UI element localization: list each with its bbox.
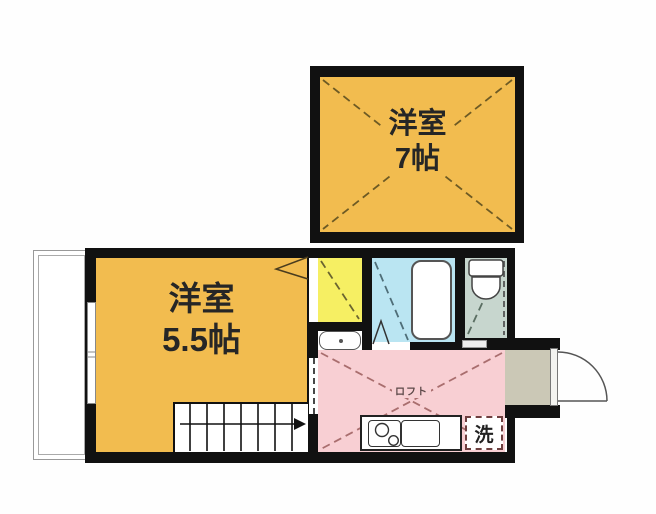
upper-room-label: 洋室 7帖 [320, 107, 515, 177]
washroom-wall [362, 258, 372, 350]
balcony-inner-line [38, 255, 85, 455]
kitchen-sink [401, 420, 440, 447]
bathtub [411, 260, 452, 340]
loft-edge-opening [309, 358, 318, 414]
washbasin [319, 331, 361, 350]
upper-room-name: 洋室 [383, 107, 451, 142]
window [87, 302, 96, 404]
entrance-door-swing-icon [558, 352, 607, 401]
entrance-door-leaf [550, 348, 558, 406]
staircase [173, 402, 308, 452]
upper-room-size: 7帖 [390, 142, 445, 177]
washer-space: 洗 [465, 416, 503, 450]
loft-label: ロフト [318, 383, 505, 398]
lower-room-label: 洋室 5.5帖 [96, 278, 307, 360]
toilet-wall-left [455, 258, 465, 350]
floor-plan: 洗 [0, 0, 656, 514]
closet [318, 258, 362, 322]
closet-wall [318, 322, 362, 331]
lower-room-name: 洋室 [169, 278, 235, 319]
toilet-threshold [462, 340, 487, 348]
bathroom-wall [410, 342, 455, 350]
toilet-room [465, 258, 507, 338]
balcony [33, 250, 90, 460]
closet-door-opening [309, 258, 318, 322]
stove [368, 420, 401, 447]
entrance-wall-bottom [505, 405, 560, 418]
entrance-floor [505, 350, 550, 405]
lower-room-size: 5.5帖 [162, 319, 241, 360]
